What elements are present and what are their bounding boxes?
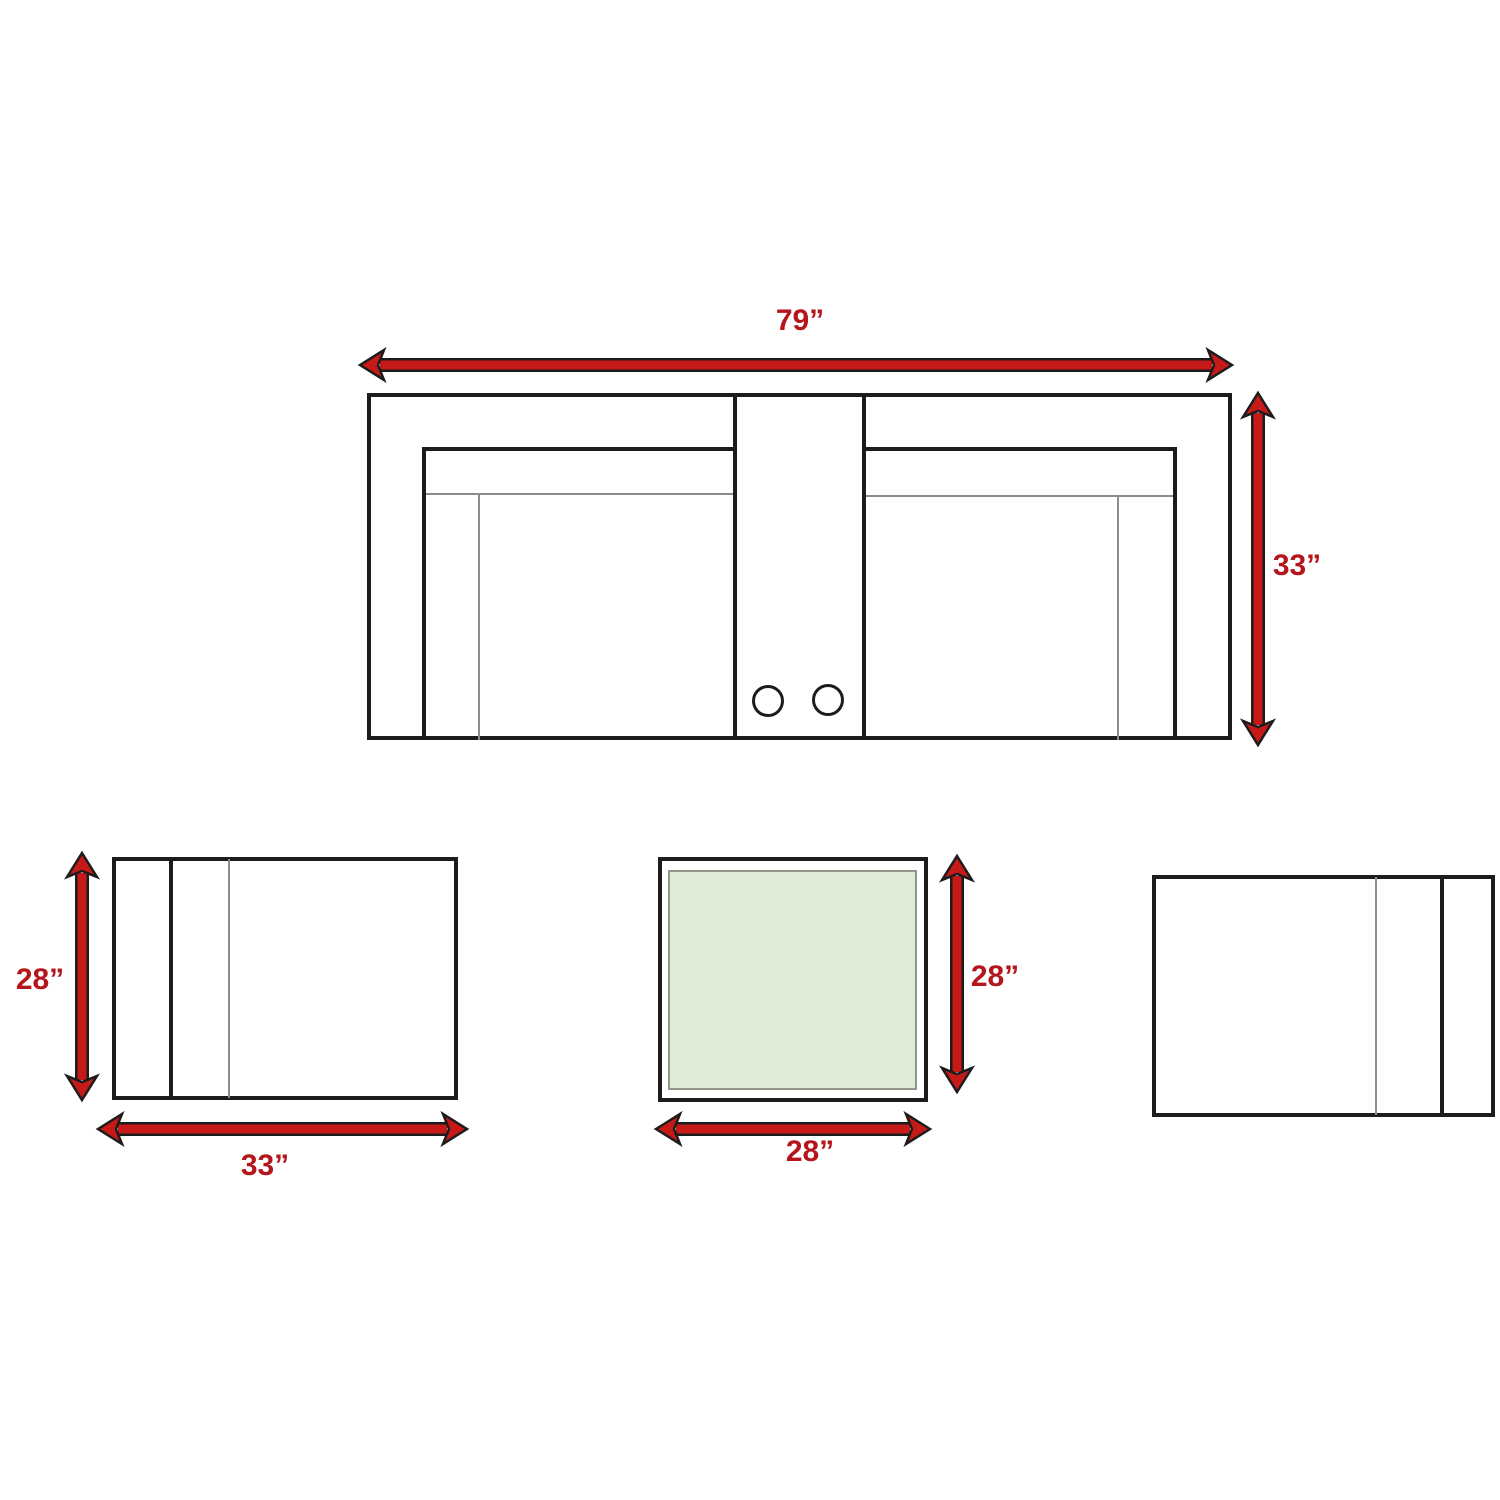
left-seat-cushion-line-vertical [478,493,480,740]
console-left-divider [733,395,737,738]
sofa-width-dimension-label: 79” [740,303,860,339]
left-chair-cushion-line [228,859,230,1098]
right-seat-back-armrest-line [866,447,1177,740]
left-chair-outline [112,857,458,1100]
cupholder-icon [752,685,784,717]
left-seat-cushion-line-horizontal [426,493,733,495]
table-depth-dimension-label: 28” [965,959,1025,995]
table-glass-top [668,870,917,1090]
right-seat-cushion-line-vertical [1117,495,1119,740]
sofa-width-dimension-arrow [358,347,1234,383]
right-seat-cushion-line-horizontal [866,495,1173,497]
left-chair-width-dimension-arrow [96,1111,469,1147]
left-chair-depth-dimension-label: 28” [8,962,72,998]
left-seat-back-armrest-line [422,447,733,740]
left-chair-width-dimension-label: 33” [215,1148,315,1184]
cupholder-icon [812,684,844,716]
right-chair-armrest-line [1440,877,1444,1115]
table-width-dimension-label: 28” [760,1134,860,1170]
left-chair-armrest-line [169,859,173,1098]
furniture-dimensions-diagram: 79” 33” [0,0,1500,1500]
sofa-depth-dimension-label: 33” [1267,548,1327,584]
right-chair-cushion-line [1375,877,1377,1115]
